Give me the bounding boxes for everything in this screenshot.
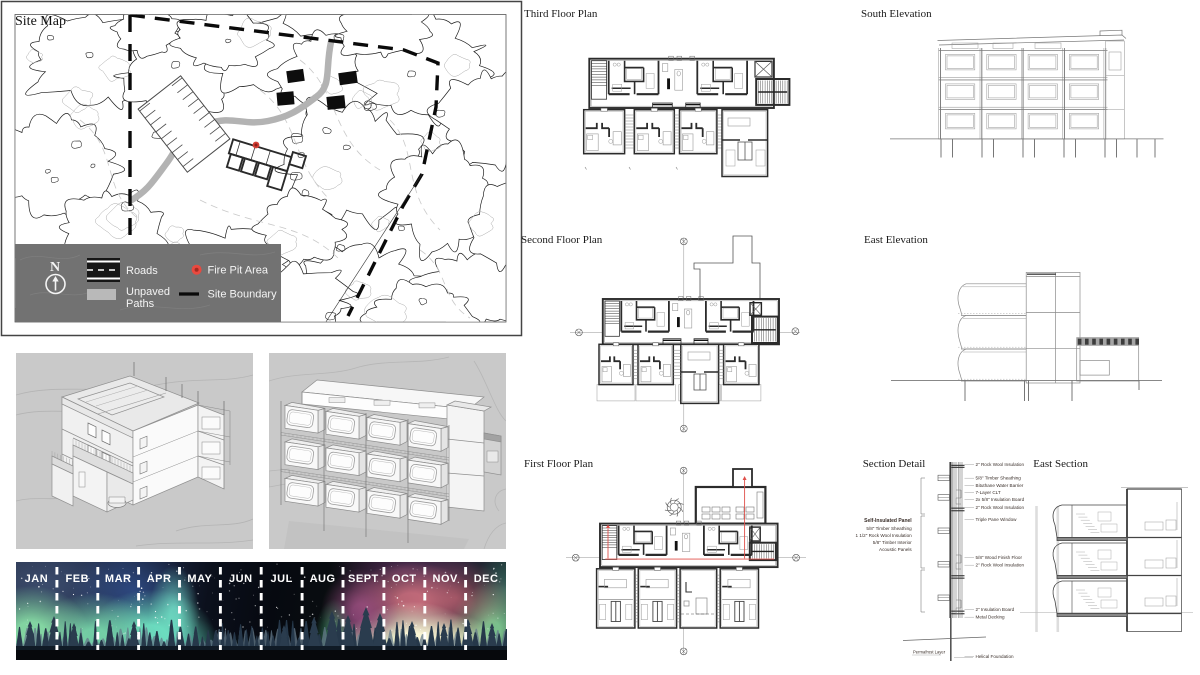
- svg-text:South Elevation: South Elevation: [861, 8, 932, 20]
- svg-text:2" Rock Wool Insulation: 2" Rock Wool Insulation: [976, 462, 1025, 467]
- svg-text:2" Insulation Board: 2" Insulation Board: [976, 607, 1015, 612]
- svg-text:1 1/2" Rock Wool Insulation: 1 1/2" Rock Wool Insulation: [855, 533, 912, 538]
- svg-text:7-Layer CLT: 7-Layer CLT: [976, 490, 1001, 495]
- svg-text:Bituthane Water Barrier: Bituthane Water Barrier: [976, 483, 1024, 488]
- svg-text:East Section: East Section: [1033, 458, 1088, 470]
- svg-text:Metal Decking: Metal Decking: [976, 615, 1006, 620]
- svg-text:East Elevation: East Elevation: [864, 234, 928, 246]
- svg-text:Triple Pane Window: Triple Pane Window: [976, 517, 1018, 522]
- svg-text:5/8" Timber Sheathing: 5/8" Timber Sheathing: [866, 526, 912, 531]
- svg-text:5/8" Timber Sheathing: 5/8" Timber Sheathing: [976, 476, 1022, 481]
- svg-text:Helical Foundation: Helical Foundation: [976, 654, 1014, 659]
- svg-text:5/8" Wood Finish Floor: 5/8" Wood Finish Floor: [976, 555, 1023, 560]
- svg-text:Acoustic Panels: Acoustic Panels: [879, 547, 912, 552]
- svg-text:Section Detail: Section Detail: [863, 458, 926, 470]
- svg-text:2" Rock Wool Insulation: 2" Rock Wool Insulation: [976, 505, 1025, 510]
- svg-text:2x 5/8" Insulation Board: 2x 5/8" Insulation Board: [976, 497, 1025, 502]
- svg-text:Self-Insulated Panel: Self-Insulated Panel: [864, 518, 912, 524]
- svg-text:2" Rock Wool Insulation: 2" Rock Wool Insulation: [976, 563, 1025, 568]
- svg-text:Permafrost Layer: Permafrost Layer: [913, 650, 946, 655]
- svg-text:5/8" Timber Interior: 5/8" Timber Interior: [873, 540, 912, 545]
